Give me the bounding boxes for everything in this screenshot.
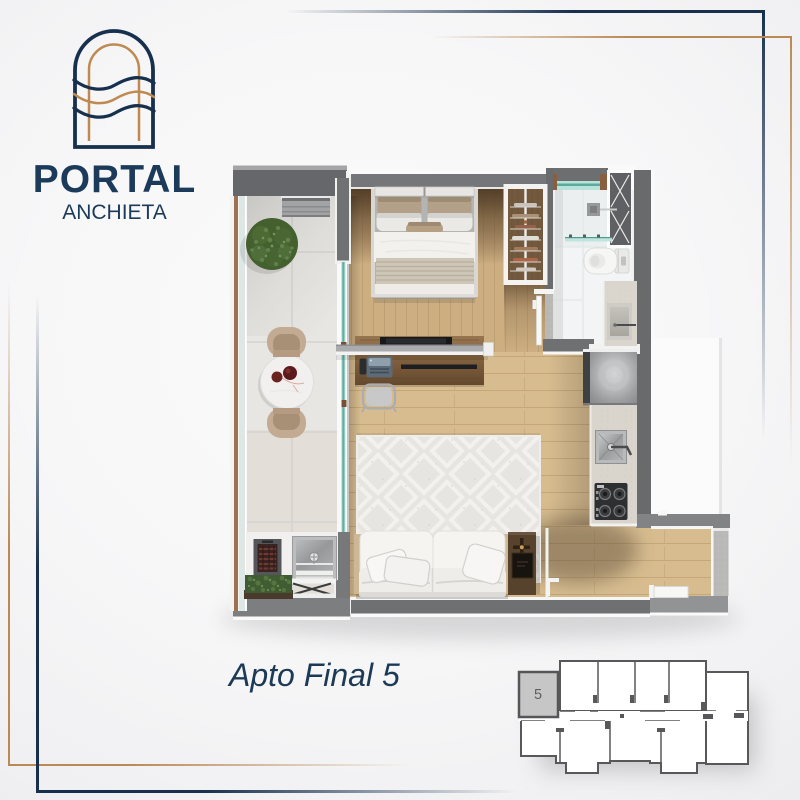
svg-text:5: 5 — [534, 687, 542, 703]
